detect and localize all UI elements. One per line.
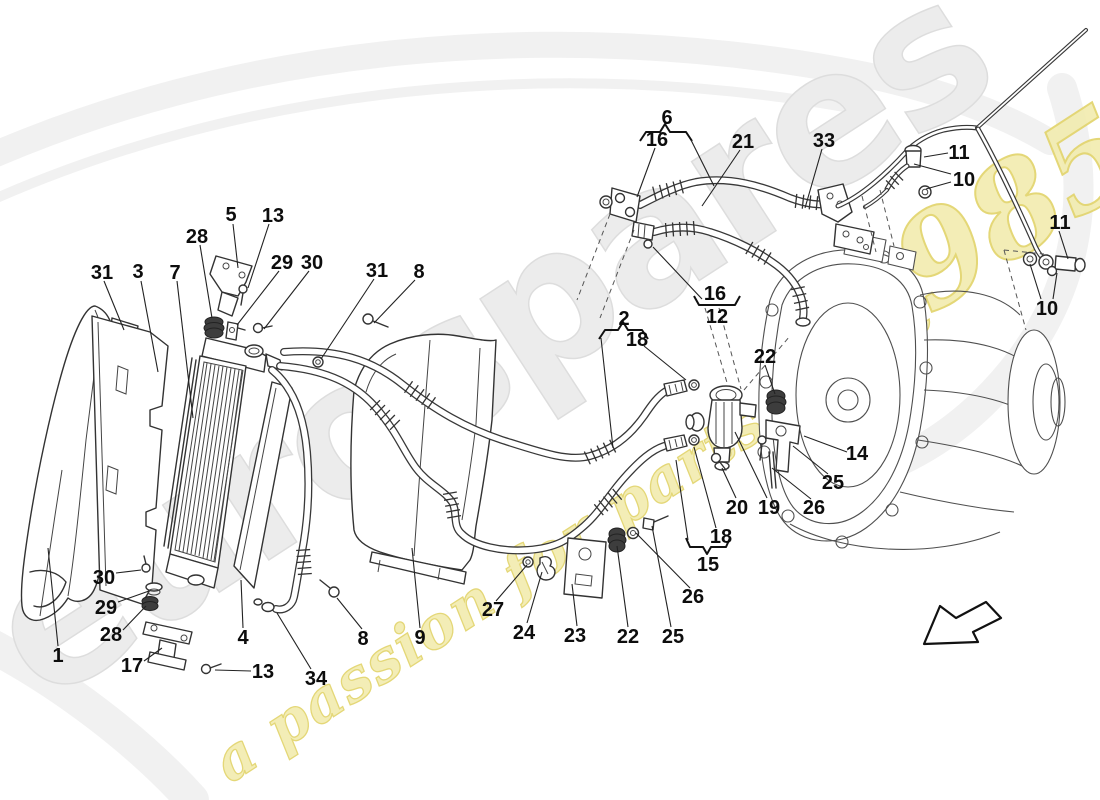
- part-callout-26: 26: [682, 586, 704, 608]
- leader-line-28: [200, 245, 212, 318]
- part-callout-11: 11: [948, 142, 969, 164]
- leader-line-13: [248, 224, 269, 288]
- leader-line-22: [617, 546, 628, 627]
- part-callout-24: 24: [513, 622, 536, 644]
- part-callout-30: 30: [301, 252, 323, 274]
- part-callout-6: 6: [661, 107, 672, 129]
- part-callout-33: 33: [813, 130, 835, 152]
- part-callout-11: 11: [1049, 212, 1070, 234]
- part-callout-13: 13: [262, 205, 284, 227]
- part-callout-10: 10: [1036, 298, 1058, 320]
- part-callout-31: 31: [366, 260, 388, 282]
- part-callout-18: 18: [710, 526, 732, 548]
- part-callout-22: 22: [754, 346, 776, 368]
- part-callout-29: 29: [271, 252, 293, 274]
- part-callout-23: 23: [564, 625, 586, 647]
- part-callout-21: 21: [732, 131, 754, 153]
- part-callout-34: 34: [305, 668, 328, 690]
- leader-line-13: [215, 670, 251, 671]
- part-callout-5: 5: [225, 204, 236, 226]
- part-callout-29: 29: [95, 597, 117, 619]
- part-callout-3: 3: [132, 261, 143, 283]
- part-callout-4: 4: [237, 627, 249, 649]
- part-callout-31: 31: [91, 262, 113, 284]
- part-callout-25: 25: [662, 626, 684, 648]
- leader-line-26: [636, 533, 690, 588]
- part-callout-10: 10: [953, 169, 975, 191]
- part-callout-18: 18: [626, 329, 648, 351]
- part-callout-27: 27: [482, 599, 504, 621]
- part-callout-2: 2: [618, 308, 629, 330]
- leader-line-8: [337, 598, 362, 629]
- part-callout-22: 22: [617, 626, 639, 648]
- part-callout-30: 30: [93, 567, 115, 589]
- parts-diagram-canvas: eurospares a passion for parts since 198…: [0, 0, 1100, 800]
- parts-diagram-page: eurospares a passion for parts since 198…: [0, 0, 1100, 800]
- leader-line-34: [277, 613, 311, 669]
- part-callout-7: 7: [169, 262, 180, 284]
- part-callout-20: 20: [726, 497, 748, 519]
- leader-line-30: [264, 271, 309, 329]
- part-callout-1: 1: [52, 645, 63, 667]
- part-callout-9: 9: [414, 627, 425, 649]
- part-callout-16: 16: [704, 283, 726, 305]
- part-callout-13: 13: [252, 661, 274, 683]
- leader-line-7: [177, 281, 193, 418]
- part-callout-19: 19: [758, 497, 780, 519]
- part-callout-12: 12: [706, 306, 728, 328]
- part-callout-28: 28: [186, 226, 208, 248]
- part-callout-8: 8: [413, 261, 424, 283]
- part-callout-16: 16: [646, 129, 668, 151]
- part-callout-26: 26: [803, 497, 825, 519]
- part-callout-14: 14: [846, 443, 869, 465]
- part-callout-28: 28: [100, 624, 122, 646]
- part-callout-8: 8: [357, 628, 368, 650]
- direction-arrow: [924, 602, 1001, 644]
- part-callout-17: 17: [121, 655, 143, 677]
- part-callout-25: 25: [822, 472, 844, 494]
- part-callout-15: 15: [697, 554, 719, 576]
- leader-line-25: [652, 526, 671, 627]
